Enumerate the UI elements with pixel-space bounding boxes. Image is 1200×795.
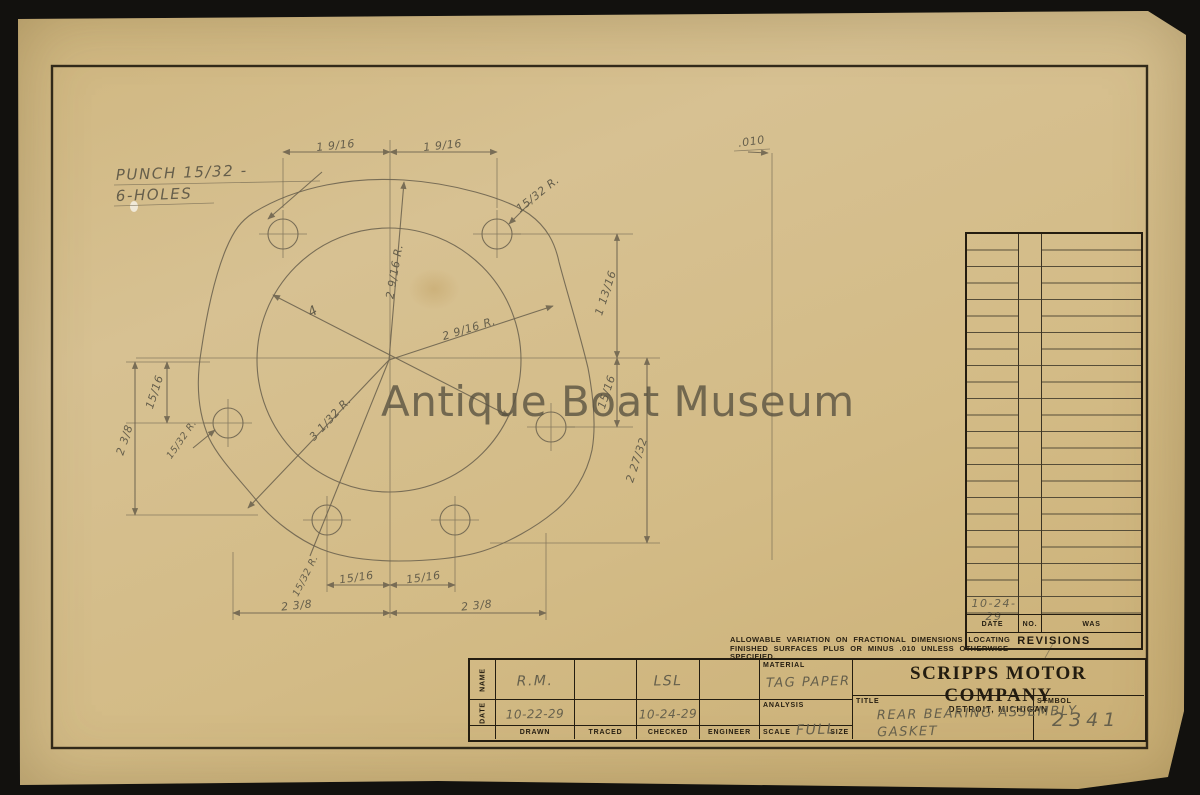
title-label: TITLE — [856, 698, 879, 705]
punch-note-line2: 6-HOLES — [116, 184, 193, 205]
company-block: SCRIPPS MOTOR COMPANY DETROIT, MICHIGAN … — [853, 660, 1144, 740]
dim-bottom-inner-right: 15/16 — [405, 569, 441, 587]
scale-label: SCALE — [763, 729, 791, 736]
footer-drawn-cell: DRAWN — [496, 726, 575, 739]
material-label: MATERIAL — [763, 662, 805, 669]
engineer-column-label: ENGINEER — [700, 726, 759, 739]
traced-date-value — [575, 712, 636, 713]
dim-bottom-inner-left: 15/16 — [338, 569, 374, 587]
checked-column-label: CHECKED — [637, 726, 699, 739]
material-cell: MATERIAL TAG PAPER — [760, 660, 853, 700]
symbol-cell: SYMBOL 2341 — [1034, 696, 1144, 740]
revisions-col-was-label: WAS — [1042, 615, 1141, 633]
dim-bottom-outer-right: 2 3/8 — [460, 597, 492, 613]
thickness-label: .010 — [737, 133, 765, 150]
watermark: Antique Boat Museum — [381, 377, 821, 426]
radius-bottom-hole: 15/32 R. — [291, 553, 321, 598]
title-cell: TITLE REAR BEARING ASSEMBLY GASKET — [853, 696, 1034, 740]
dim-right-lower: 2 27/32 — [623, 436, 650, 484]
revisions-grid — [967, 234, 1141, 614]
footer-engineer-cell: ENGINEER — [700, 726, 760, 739]
company-body: TITLE REAR BEARING ASSEMBLY GASKET SYMBO… — [853, 696, 1144, 740]
radius-bottom-left: 3 1/32 R. — [307, 394, 354, 443]
footer-checked-cell: CHECKED — [637, 726, 700, 739]
revisions-col-date-label: DATE — [967, 615, 1019, 633]
material-value: TAG PAPER — [766, 674, 851, 691]
checked-name-cell: LSL — [637, 660, 700, 700]
title-block: NAME R.M. LSL MATERIAL TAG PAPER DATE — [468, 658, 1147, 742]
size-label: SIZE — [830, 729, 849, 736]
radius-right: 2 9/16 R. — [441, 314, 498, 343]
traced-name-cell — [575, 660, 637, 700]
row-label-date-cell: DATE — [470, 700, 496, 726]
radius-top: 2 9/16 R. — [383, 243, 405, 300]
checked-date-cell: 10-24-29 — [637, 700, 700, 726]
footer-traced-cell: TRACED — [575, 726, 637, 739]
drawn-date-value: 10-22-29 — [496, 706, 574, 721]
revisions-was-column — [1042, 234, 1141, 614]
title-block-left-grid: NAME R.M. LSL MATERIAL TAG PAPER DATE — [470, 660, 853, 740]
engineer-date-value — [700, 712, 759, 713]
traced-date-cell — [575, 700, 637, 726]
engineer-date-cell — [700, 700, 760, 726]
revisions-footer: REVISIONS — [967, 632, 1141, 648]
dim-left-upper: 15/16 — [143, 373, 166, 410]
dim-bottom-outer-left: 2 3/8 — [280, 597, 312, 613]
radius-top-right-hole: 15/32 R. — [514, 173, 562, 215]
traced-column-label: TRACED — [575, 726, 636, 739]
radius-left-hole: 15/32 R. — [165, 418, 200, 461]
revisions-header-row: DATE NO. WAS — [967, 614, 1141, 633]
revisions-date-column — [967, 234, 1019, 614]
traced-name-value — [575, 679, 636, 680]
row-label-name-cell: NAME — [470, 660, 496, 700]
dim-right-upper: 1 13/16 — [592, 269, 619, 317]
annotation-labels: PUNCH 15/32 - 6-HOLES 1 9/16 1 9/16 .010… — [114, 133, 766, 613]
checked-date-value: 10-24-29 — [637, 706, 699, 721]
revisions-table: 10-24-29 DATE NO. WAS REVISIONS — [965, 232, 1143, 650]
engineer-name-value — [700, 679, 759, 680]
symbol-label: SYMBOL — [1037, 698, 1072, 705]
scanned-drawing-sheet: PUNCH 15/32 - 6-HOLES 1 9/16 1 9/16 .010… — [0, 0, 1200, 795]
footer-scale-cell: SCALE FULL SIZE — [760, 726, 853, 739]
footer-blank-cell — [470, 726, 496, 739]
drawn-name-cell: R.M. — [496, 660, 575, 700]
engineer-name-cell — [700, 660, 760, 700]
revisions-no-column — [1019, 234, 1042, 614]
symbol-value: 2341 — [1052, 709, 1120, 731]
revisions-col-no-label: NO. — [1019, 615, 1042, 633]
analysis-label: ANALYSIS — [763, 702, 804, 709]
drawn-date-cell: 10-22-29 — [496, 700, 575, 726]
punch-note-line1: PUNCH 15/32 - — [116, 161, 249, 184]
company-header: SCRIPPS MOTOR COMPANY DETROIT, MICHIGAN — [853, 660, 1144, 696]
checked-name-value: LSL — [637, 672, 699, 689]
drawn-name-value: R.M. — [496, 672, 574, 689]
drawn-column-label: DRAWN — [496, 726, 574, 739]
name-row-label: NAME — [479, 668, 486, 692]
date-row-label: DATE — [479, 702, 486, 724]
dim-left-lower: 2 3/8 — [114, 423, 136, 457]
